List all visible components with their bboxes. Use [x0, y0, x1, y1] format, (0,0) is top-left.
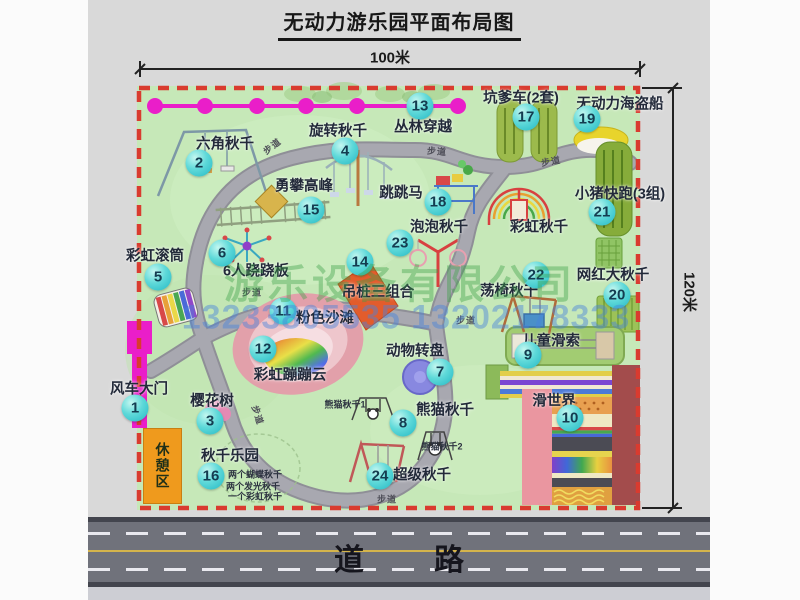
attraction-badge-7: 7	[427, 359, 454, 386]
attraction-badge-19: 19	[574, 106, 601, 133]
attraction-badge-2: 2	[186, 150, 213, 177]
attraction-label-4: 旋转秋千	[309, 120, 367, 141]
attraction-label-18: 跳跳马	[379, 182, 423, 203]
attraction-badge-18: 18	[425, 189, 452, 216]
attraction-badge-21: 21	[589, 199, 616, 226]
rest-area: 休憩区	[143, 428, 182, 504]
attraction-badge-12: 12	[250, 336, 277, 363]
page-title: 无动力游乐园平面布局图	[88, 6, 710, 41]
attraction-label-21: 小猪快跑(3组)	[575, 183, 665, 204]
page-title-text: 无动力游乐园平面布局图	[278, 6, 521, 41]
attraction-badge-1: 1	[122, 395, 149, 422]
height-dimension-label: 120米	[680, 267, 701, 317]
attraction-label-8: 熊猫秋千	[416, 399, 474, 420]
panda-sublabel-0: 熊猫秋千1	[324, 398, 365, 411]
attraction-badge-8: 8	[390, 410, 417, 437]
attraction-badge-16: 16	[198, 463, 225, 490]
road: 道路	[88, 517, 710, 587]
attraction-badge-24: 24	[367, 463, 394, 490]
attraction-label-23: 泡泡秋千	[410, 216, 468, 237]
watermark-phone: 13233805535 13202178333	[182, 299, 630, 338]
attraction-label-rainbow-swing: 彩虹秋千	[510, 216, 568, 237]
attraction-label-5: 彩虹滚筒	[126, 245, 184, 266]
attraction-badge-3: 3	[197, 408, 224, 435]
attraction-badge-4: 4	[332, 138, 359, 165]
attraction-badge-17: 17	[513, 104, 540, 131]
attraction-label-15: 勇攀高峰	[275, 175, 333, 196]
attraction-label-24: 超级秋千	[393, 464, 451, 485]
attraction-badge-10: 10	[557, 405, 584, 432]
attraction-label-12: 彩虹蹦蹦云	[254, 364, 327, 385]
attraction-badge-15: 15	[298, 197, 325, 224]
panda-sublabel-1: 熊猫秋千2	[421, 440, 462, 453]
attraction-label-7: 动物转盘	[386, 340, 444, 361]
attraction-badge-13: 13	[407, 93, 434, 120]
attraction-badge-5: 5	[145, 264, 172, 291]
swing-note-2: 一个彩虹秋千	[228, 490, 282, 503]
path-label-6: 步道	[377, 493, 397, 506]
rest-area-label: 休憩区	[153, 442, 173, 490]
width-dimension-label: 100米	[365, 47, 415, 68]
park-plan-page: 无动力游乐园平面布局图 100米 120米 休憩区 游乐设备有限公司 13233…	[0, 0, 800, 600]
attraction-badge-9: 9	[515, 342, 542, 369]
road-label: 道路	[88, 535, 710, 579]
road-shoulder	[88, 587, 710, 600]
path-label-1: 步道	[427, 144, 448, 158]
